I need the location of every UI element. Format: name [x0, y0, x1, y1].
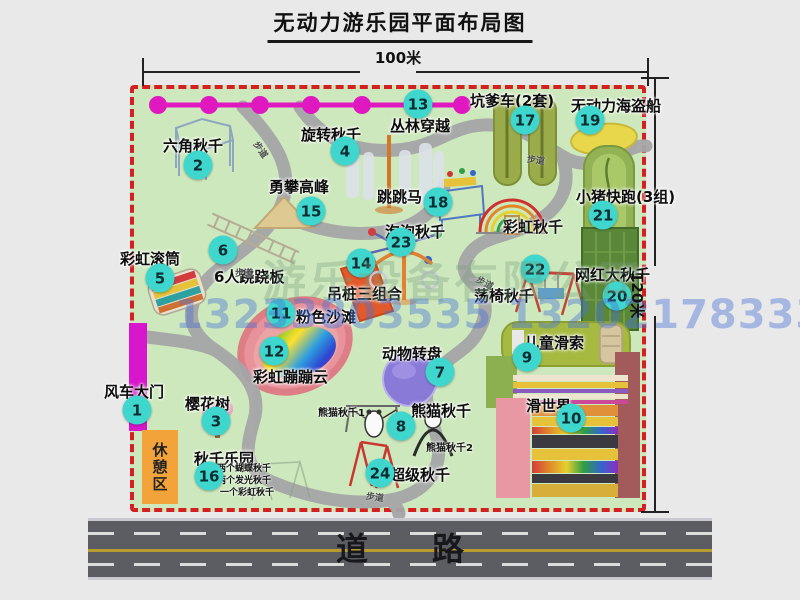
- trail-label-3: 步道: [235, 266, 253, 279]
- jungle-crossing-badge: 13: [404, 90, 433, 119]
- trail-label-5: 步道: [365, 489, 385, 504]
- rainbow-cloud-badge: 12: [260, 337, 289, 366]
- climb-peak-label: 勇攀高峰: [269, 176, 329, 197]
- swing-park-badge: 16: [195, 462, 224, 491]
- piggy-run-badge: 21: [589, 201, 618, 230]
- rotating-swing-badge: 4: [331, 137, 360, 166]
- panda-swing-label: 熊猫秋千: [411, 400, 471, 421]
- watermark-phone: 13233803535 13202178333: [175, 292, 800, 338]
- cherry-tree-badge: 3: [202, 407, 231, 436]
- dimension-right-label: 120米: [627, 272, 648, 318]
- pit-car-badge: 17: [511, 106, 540, 135]
- panda-swing-1-label: 熊猫秋千1: [318, 404, 365, 419]
- jump-horse-badge: 18: [424, 188, 453, 217]
- pit-car-label: 坑爹车(2套): [470, 90, 554, 111]
- hexagon-swing-badge: 2: [184, 151, 213, 180]
- pirate-ship-badge: 19: [576, 106, 605, 135]
- six-person-seesaw-badge: 6: [209, 236, 238, 265]
- panda-swing-2-label: 熊猫秋千2: [426, 439, 473, 454]
- slide-world-badge: 10: [557, 404, 586, 433]
- super-swing-label: 超级秋千: [390, 464, 450, 485]
- kids-zipline-badge: 9: [513, 343, 542, 372]
- piggy-run-label: 小猪快跑(3组): [576, 186, 675, 207]
- swing-park-note-3: 一个彩虹秋千: [220, 485, 274, 498]
- jump-horse-label: 跳跳马: [377, 186, 422, 207]
- park-plan-poster: 无动力游乐园平面布局图: [0, 0, 800, 600]
- climb-peak-badge: 15: [297, 197, 326, 226]
- animal-turntable-badge: 7: [426, 358, 455, 387]
- road-band: 道 路: [88, 518, 712, 580]
- rest-area-box: 休憩区: [142, 430, 178, 504]
- road-label: 道 路: [88, 524, 712, 570]
- rainbow-cloud-label: 彩虹蹦蹦云: [253, 366, 328, 387]
- dimension-top-label: 100米: [358, 47, 438, 68]
- trail-label-2: 步道: [526, 152, 546, 167]
- rainbow-roller-badge: 5: [146, 264, 175, 293]
- rest-area-label: 休憩区: [150, 442, 171, 493]
- page-title: 无动力游乐园平面布局图: [268, 7, 533, 43]
- super-swing-badge: 24: [366, 459, 395, 488]
- windmill-gate-badge: 1: [123, 396, 152, 425]
- rainbow-swing-label: 彩虹秋千: [503, 216, 563, 237]
- panda-swing-badge: 8: [387, 412, 416, 441]
